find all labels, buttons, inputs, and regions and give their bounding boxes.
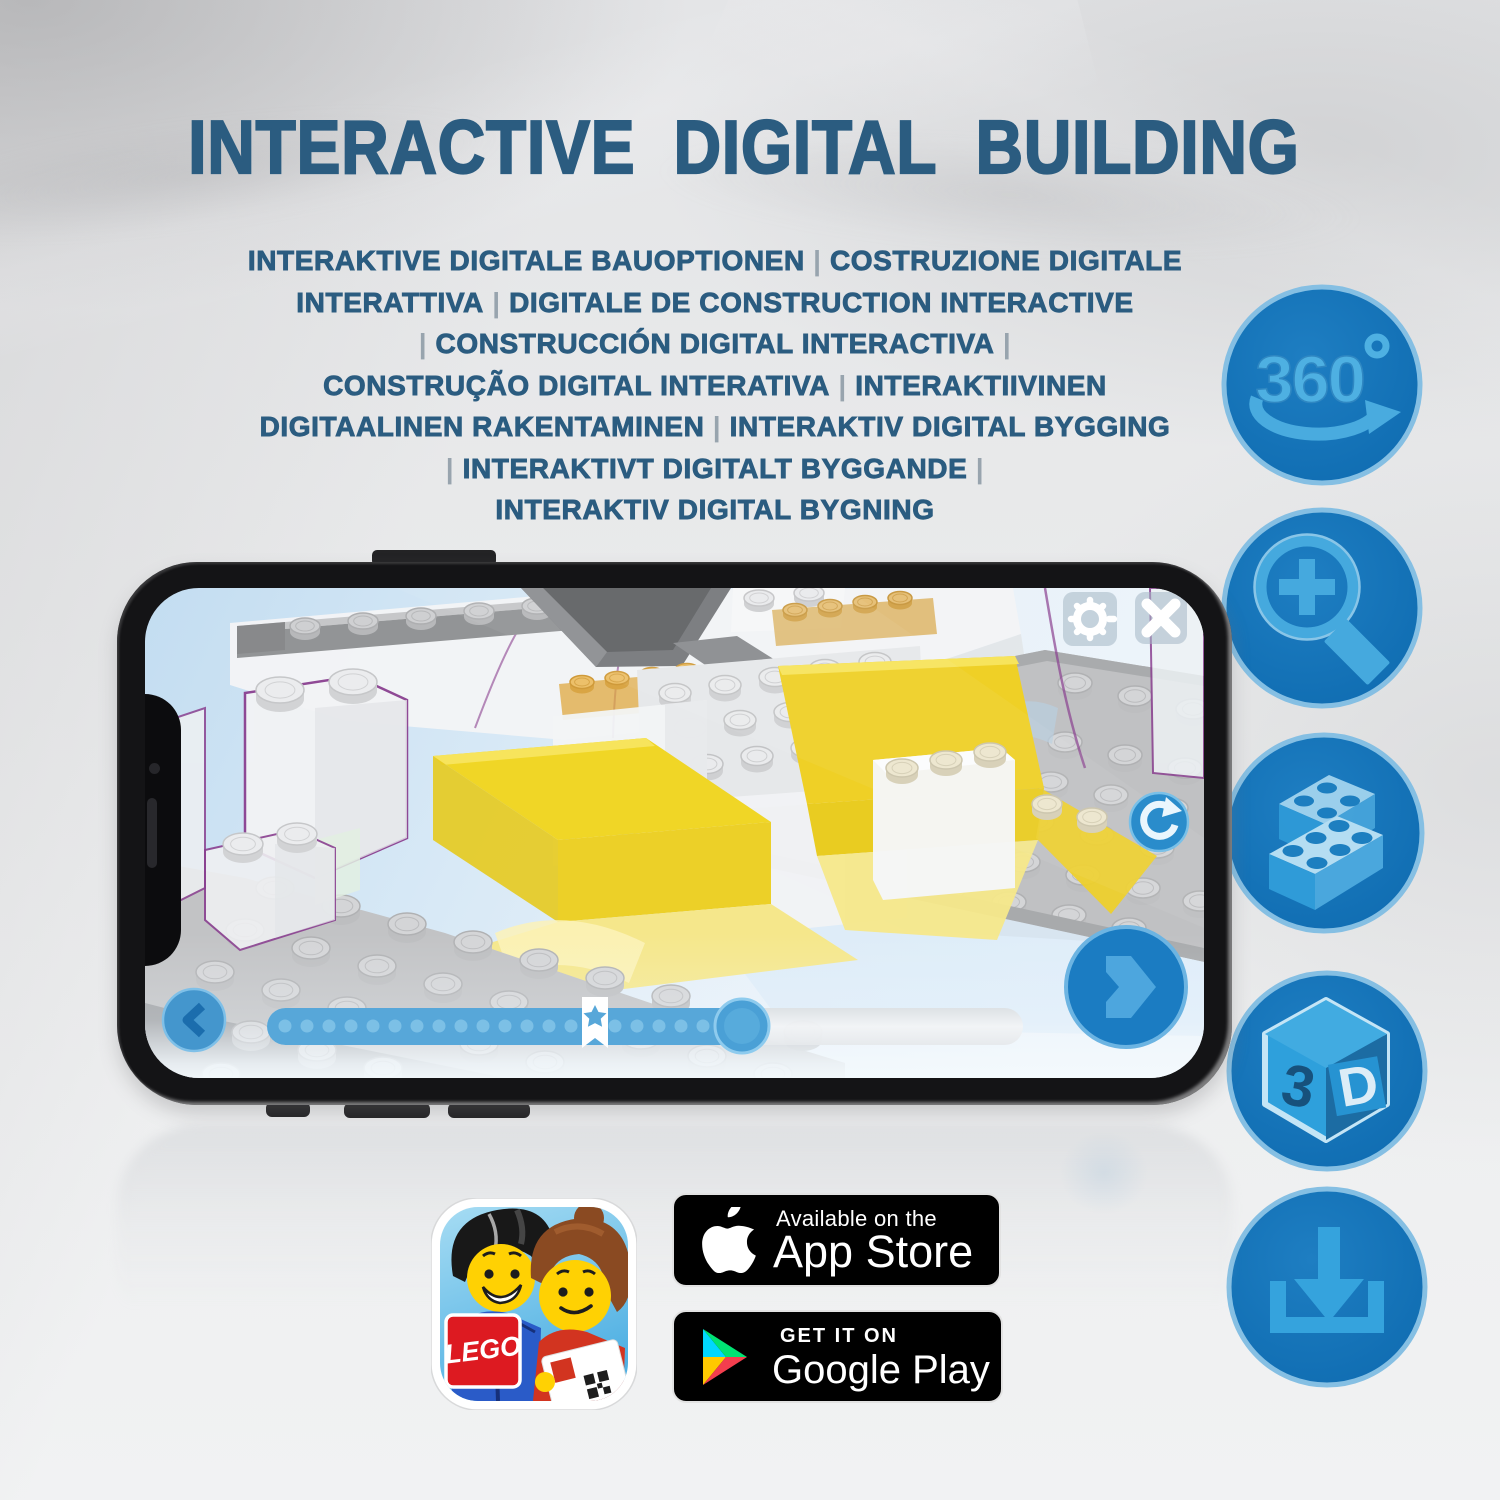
svg-text:360: 360 <box>1255 343 1363 417</box>
